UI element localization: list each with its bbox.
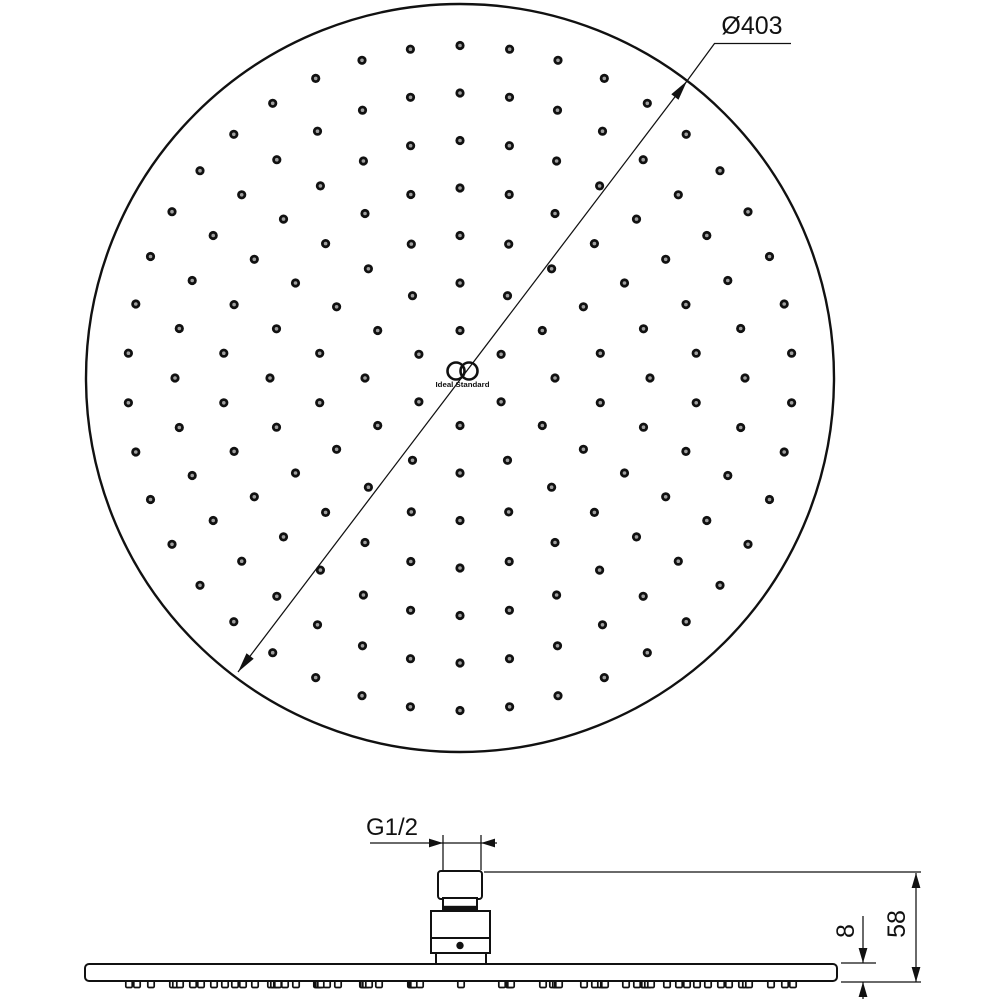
nozzle-dot-center bbox=[376, 424, 380, 428]
nozzle-dot-center bbox=[314, 77, 318, 81]
nozzle-dot-center bbox=[648, 376, 652, 380]
nozzle-dot-center bbox=[646, 102, 650, 106]
nozzle-dot-center bbox=[232, 450, 236, 454]
nozzle-dot-center bbox=[458, 234, 462, 238]
height-arrow-down-icon bbox=[912, 967, 921, 982]
nozzle-dot-center bbox=[726, 474, 730, 478]
nozzle-dot-center bbox=[664, 258, 668, 262]
nozzle-dot-center bbox=[367, 485, 371, 489]
nozzle-dot-center bbox=[410, 242, 414, 246]
nozzle-dot-center bbox=[768, 255, 772, 259]
nozzle-dot-center bbox=[360, 694, 364, 698]
connector-body bbox=[431, 911, 490, 938]
nozzle-dot-center bbox=[362, 593, 366, 597]
nozzle-dot-center bbox=[507, 560, 511, 564]
side-view: G1/2 58 8 bbox=[85, 814, 921, 999]
nozzle-dot-center bbox=[458, 139, 462, 143]
nozzle-dot-center bbox=[508, 144, 512, 148]
nozzle-dot-center bbox=[253, 495, 257, 499]
nozzle-dot-center bbox=[684, 450, 688, 454]
nozzle-dot-center bbox=[275, 327, 279, 331]
nozzle-dot-center bbox=[664, 495, 668, 499]
nozzle-dot-center bbox=[335, 305, 339, 309]
nozzle-dot-center bbox=[271, 651, 275, 655]
nozzle-dot-center bbox=[739, 327, 743, 331]
nozzle-dot-center bbox=[376, 329, 380, 333]
nozzle-dot-center bbox=[316, 623, 320, 627]
nozzle-dot-center bbox=[178, 426, 182, 430]
nozzle-dot-center bbox=[271, 102, 275, 106]
nozzle-dot-center bbox=[222, 401, 226, 405]
nozzle-dot-center bbox=[603, 676, 607, 680]
nozzle-dot-center bbox=[282, 535, 286, 539]
nozzle-dot-center bbox=[507, 242, 511, 246]
nozzle-dot-center bbox=[361, 108, 365, 112]
nozzle-dot-center bbox=[211, 234, 215, 238]
nozzle-dot-center bbox=[635, 217, 639, 221]
nozzle-dot-center bbox=[409, 609, 413, 613]
nozzle-dot-center bbox=[268, 376, 272, 380]
nozzle-dot-center bbox=[409, 705, 413, 709]
thread-arrow-right-icon bbox=[481, 839, 495, 848]
nozzle-dot-center bbox=[360, 59, 364, 63]
technical-drawing-page: Ideal Standard Ø403 bbox=[0, 0, 1000, 1000]
nozzle-dot-center bbox=[134, 450, 138, 454]
nozzle-dot-center bbox=[417, 353, 421, 357]
nozzle-dot-center bbox=[458, 519, 462, 523]
nozzle-dot-center bbox=[318, 401, 322, 405]
nozzle-dot-center bbox=[508, 705, 512, 709]
nozzle-dot-center bbox=[363, 212, 367, 216]
nozzle-dot-center bbox=[294, 281, 298, 285]
nozzle-dot-center bbox=[508, 657, 512, 661]
nozzle-dot-center bbox=[319, 184, 323, 188]
nozzle-dot-center bbox=[409, 193, 413, 197]
nozzle-dot-center bbox=[458, 661, 462, 665]
nozzle-dot-center bbox=[367, 267, 371, 271]
nozzle-dot-center bbox=[506, 459, 510, 463]
nozzle-dot-center bbox=[458, 44, 462, 48]
nozzle-dot-center bbox=[603, 77, 607, 81]
nozzle-dot-center bbox=[623, 471, 627, 475]
nozzle-dot-center bbox=[324, 511, 328, 515]
nozzle-dot-center bbox=[746, 543, 750, 547]
nozzle-dot-center bbox=[149, 498, 153, 502]
thickness-arrow-down-icon bbox=[859, 948, 868, 963]
nozzle-dot-center bbox=[541, 329, 545, 333]
nozzle-dot-center bbox=[319, 568, 323, 572]
technical-drawing-canvas: Ideal Standard Ø403 bbox=[0, 0, 1000, 1000]
nozzle-dot-center bbox=[507, 510, 511, 514]
nozzle-dot-center bbox=[726, 279, 730, 283]
nozzle-dot-center bbox=[232, 620, 236, 624]
thread-dimension: G1/2 bbox=[366, 814, 497, 870]
nozzle-dot-center bbox=[508, 47, 512, 51]
nozzle-dot-center bbox=[641, 158, 645, 162]
connector-screw-dot bbox=[456, 942, 463, 949]
nozzle-dot-center bbox=[599, 352, 603, 356]
nozzle-dot-center bbox=[601, 623, 605, 627]
nozzle-dot-center bbox=[768, 498, 772, 502]
nozzle-dot-center bbox=[294, 471, 298, 475]
nozzle-dot-center bbox=[335, 448, 339, 452]
nozzle-dot-center bbox=[362, 159, 366, 163]
nozzle-dot-center bbox=[232, 303, 236, 307]
nozzle-dot-center bbox=[642, 327, 646, 331]
nozzle-dot-center bbox=[746, 210, 750, 214]
nozzle-dot-center bbox=[318, 352, 322, 356]
height-label: 58 bbox=[883, 910, 911, 938]
nozzle-dot-center bbox=[411, 294, 415, 298]
nozzle-dot-center bbox=[694, 351, 698, 355]
diameter-label: Ø403 bbox=[721, 12, 782, 40]
nozzle-dot-center bbox=[553, 376, 557, 380]
nozzle-dot-center bbox=[718, 584, 722, 588]
nozzle-dot-center bbox=[198, 584, 202, 588]
nozzle-dot-center bbox=[508, 96, 512, 100]
logo-wordmark: Ideal Standard bbox=[436, 380, 490, 389]
nozzle-dot-center bbox=[232, 133, 236, 137]
shower-plate-profile bbox=[85, 964, 837, 981]
nozzle-dot-center bbox=[601, 129, 605, 133]
nozzle-dot-center bbox=[782, 450, 786, 454]
nozzle-dot-center bbox=[598, 184, 602, 188]
nozzle-dot-center bbox=[507, 193, 511, 197]
thickness-dimension: 8 bbox=[832, 916, 876, 999]
nozzle-dot-center bbox=[198, 169, 202, 173]
nozzle-dot-center bbox=[178, 327, 182, 331]
thread-label: G1/2 bbox=[366, 814, 418, 841]
nozzle-dot-center bbox=[253, 258, 257, 262]
nozzle-dot-center bbox=[409, 657, 413, 661]
nozzle-dot-center bbox=[409, 144, 413, 148]
nozzle-dot-center bbox=[458, 424, 462, 428]
nozzle-dot-center bbox=[363, 541, 367, 545]
nozzle-dot-center bbox=[677, 193, 681, 197]
nozzle-dot-center bbox=[705, 519, 709, 523]
diameter-leader-line bbox=[687, 44, 791, 82]
nozzle-dot-center bbox=[190, 474, 194, 478]
nozzle-dot-center bbox=[240, 559, 244, 563]
nozzle-dot-center bbox=[222, 351, 226, 355]
nozzle-dot-center bbox=[275, 425, 279, 429]
nozzle-dot-center bbox=[275, 595, 279, 599]
nozzle-dot-center bbox=[324, 242, 328, 246]
nozzle-dot-center bbox=[127, 401, 131, 405]
nozzle-dot-center bbox=[240, 193, 244, 197]
nozzle-dot-center bbox=[646, 651, 650, 655]
nozzle-dot-center bbox=[599, 401, 603, 405]
nozzle-dot-center bbox=[743, 376, 747, 380]
nozzle-dot-center bbox=[314, 676, 318, 680]
nozzle-dot-center bbox=[411, 459, 415, 463]
nozzle-dot-center bbox=[127, 351, 131, 355]
nozzle-dot-center bbox=[409, 96, 413, 100]
nozzle-dot-center bbox=[458, 566, 462, 570]
nozzle-dot-center bbox=[556, 108, 560, 112]
nozzle-dot-center bbox=[677, 559, 681, 563]
nozzle-dot-center bbox=[170, 210, 174, 214]
nozzle-dot-center bbox=[361, 644, 365, 648]
nozzle-dot-center bbox=[598, 568, 602, 572]
nozzle-dot-center bbox=[550, 267, 554, 271]
nozzle-dot-center bbox=[790, 401, 794, 405]
nozzle-dot-center bbox=[556, 59, 560, 63]
nozzle-dot-center bbox=[458, 471, 462, 475]
nozzle-dot-center bbox=[582, 448, 586, 452]
nozzle-dot-center bbox=[556, 694, 560, 698]
nozzle-dot-center bbox=[718, 169, 722, 173]
thickness-label: 8 bbox=[832, 924, 860, 938]
nozzle-dot-center bbox=[593, 242, 597, 246]
nozzle-dot-center bbox=[275, 158, 279, 162]
nozzle-dot-center bbox=[458, 186, 462, 190]
nozzle-dot-center bbox=[642, 425, 646, 429]
nozzle-dot-center bbox=[684, 303, 688, 307]
height-arrow-up-icon bbox=[912, 873, 921, 888]
nozzle-dot-center bbox=[409, 47, 413, 51]
nozzle-dot-center bbox=[790, 351, 794, 355]
nozzle-dot-center bbox=[458, 709, 462, 713]
nozzle-dot-center bbox=[316, 129, 320, 133]
nozzle-dot-center bbox=[499, 400, 503, 404]
nozzle-dot-center bbox=[635, 535, 639, 539]
nozzle-dot-center bbox=[553, 212, 557, 216]
nozzle-dot-center bbox=[173, 376, 177, 380]
nozzle-dot-center bbox=[593, 511, 597, 515]
nozzle-dot-center bbox=[550, 485, 554, 489]
nozzle-dot-center bbox=[641, 595, 645, 599]
nozzle-dot-center bbox=[458, 91, 462, 95]
nozzle-dot-center bbox=[508, 609, 512, 613]
nozzle-dot-center bbox=[555, 593, 559, 597]
thread-pipe bbox=[438, 871, 482, 899]
nozzle-dot-center bbox=[417, 400, 421, 404]
nozzle-dot-center bbox=[190, 279, 194, 283]
nozzle-dot-center bbox=[409, 560, 413, 564]
thread-arrow-left-icon bbox=[429, 839, 443, 848]
nozzle-dot-center bbox=[410, 510, 414, 514]
nozzle-dot-center bbox=[694, 401, 698, 405]
nozzle-dot-center bbox=[556, 644, 560, 648]
nozzle-dot-center bbox=[684, 133, 688, 137]
nozzle-dot-center bbox=[211, 519, 215, 523]
thickness-arrow-up-icon bbox=[859, 982, 868, 997]
nozzle-dot-center bbox=[363, 376, 367, 380]
nozzle-dot-center bbox=[458, 329, 462, 333]
nozzle-dot-center bbox=[134, 302, 138, 306]
nozzle-dot-center bbox=[506, 294, 510, 298]
nozzle-dot-center bbox=[499, 353, 503, 357]
nozzle-dot-center bbox=[458, 614, 462, 618]
nozzle-dot-center bbox=[582, 305, 586, 309]
nozzle-dot-center bbox=[555, 159, 559, 163]
nozzle-dot-center bbox=[170, 543, 174, 547]
nozzle-dot-center bbox=[541, 424, 545, 428]
nozzle-dot-center bbox=[705, 234, 709, 238]
nozzle-dot-center bbox=[553, 541, 557, 545]
nozzle-dot-center bbox=[782, 302, 786, 306]
nozzle-dot-center bbox=[149, 255, 153, 259]
nozzle-dot-center bbox=[684, 620, 688, 624]
nozzle-dot-center bbox=[282, 217, 286, 221]
nozzle-dot-center bbox=[458, 281, 462, 285]
nozzle-dot-center bbox=[623, 281, 627, 285]
top-view: Ideal Standard Ø403 bbox=[86, 4, 834, 752]
nozzle-dot-center bbox=[739, 426, 743, 430]
connector-neck-seal bbox=[444, 906, 476, 911]
